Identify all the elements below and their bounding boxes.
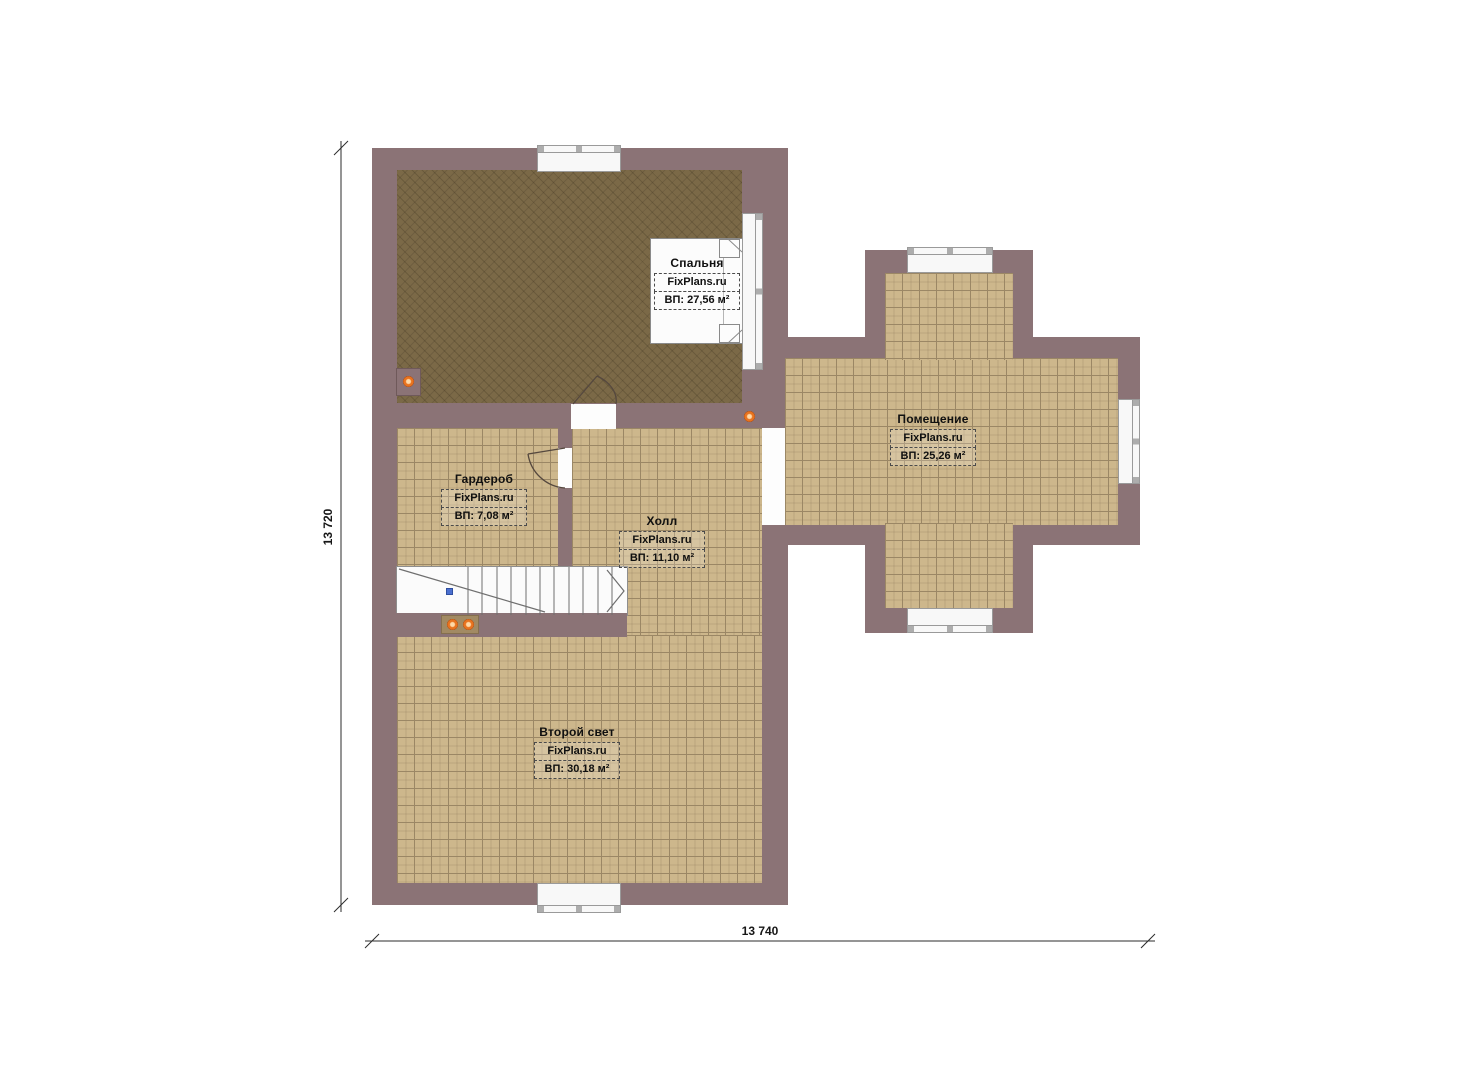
room-area: ВП: 27,56 м² bbox=[654, 291, 740, 310]
room-name: Холл bbox=[619, 514, 705, 528]
room-label-room: Помещение FixPlans.ru ВП: 25,26 м² bbox=[890, 412, 976, 466]
floor-plan-canvas: Спальня FixPlans.ru ВП: 27,56 м² Гардеро… bbox=[0, 0, 1474, 1080]
room-brand: FixPlans.ru bbox=[890, 429, 976, 448]
room-label-second-light: Второй свет FixPlans.ru ВП: 30,18 м² bbox=[534, 725, 620, 779]
room-info-box: FixPlans.ru ВП: 7,08 м² bbox=[441, 489, 527, 526]
room-brand: FixPlans.ru bbox=[619, 531, 705, 550]
room-info-box: FixPlans.ru ВП: 30,18 м² bbox=[534, 742, 620, 779]
room-area: ВП: 30,18 м² bbox=[534, 760, 620, 779]
window-frame bbox=[537, 905, 621, 913]
room-label-wardrobe: Гардероб FixPlans.ru ВП: 7,08 м² bbox=[441, 472, 527, 526]
room-label-bedroom: Спальня FixPlans.ru ВП: 27,56 м² bbox=[654, 256, 740, 310]
stair-side-wall bbox=[392, 613, 627, 637]
light-icon bbox=[403, 376, 414, 387]
window-frame bbox=[1132, 399, 1140, 484]
dimension-width-label: 13 740 bbox=[742, 924, 779, 938]
room-info-box: FixPlans.ru ВП: 27,56 м² bbox=[654, 273, 740, 310]
wardrobe-door-opening bbox=[558, 448, 572, 488]
room-brand: FixPlans.ru bbox=[534, 742, 620, 761]
stairs bbox=[396, 566, 628, 616]
stair-landing-marker bbox=[446, 588, 453, 595]
room-name: Гардероб bbox=[441, 472, 527, 486]
room-name: Помещение bbox=[890, 412, 976, 426]
dimension-line-vertical bbox=[334, 141, 348, 912]
window-frame bbox=[755, 213, 763, 370]
room-area: ВП: 11,10 м² bbox=[619, 549, 705, 568]
room-label-hall: Холл FixPlans.ru ВП: 11,10 м² bbox=[619, 514, 705, 568]
window-frame bbox=[537, 145, 621, 153]
window-frame bbox=[907, 625, 993, 633]
light-icon bbox=[447, 619, 458, 630]
bedroom-door-opening bbox=[571, 404, 616, 429]
room-name: Второй свет bbox=[534, 725, 620, 739]
dimension-height-label: 13 720 bbox=[321, 509, 335, 546]
room-brand: FixPlans.ru bbox=[654, 273, 740, 292]
window-frame bbox=[907, 247, 993, 255]
hall-annex-passage bbox=[762, 428, 785, 525]
room-info-box: FixPlans.ru ВП: 11,10 м² bbox=[619, 531, 705, 568]
room-area: ВП: 7,08 м² bbox=[441, 507, 527, 526]
room-brand: FixPlans.ru bbox=[441, 489, 527, 508]
annex-floor-bottom-arm bbox=[885, 523, 1013, 608]
room-area: ВП: 25,26 м² bbox=[890, 447, 976, 466]
room-name: Спальня bbox=[654, 256, 740, 270]
light-icon bbox=[744, 411, 755, 422]
annex-floor-top-arm bbox=[885, 273, 1013, 360]
light-icon bbox=[463, 619, 474, 630]
room-info-box: FixPlans.ru ВП: 25,26 м² bbox=[890, 429, 976, 466]
nightstand bbox=[719, 324, 740, 343]
